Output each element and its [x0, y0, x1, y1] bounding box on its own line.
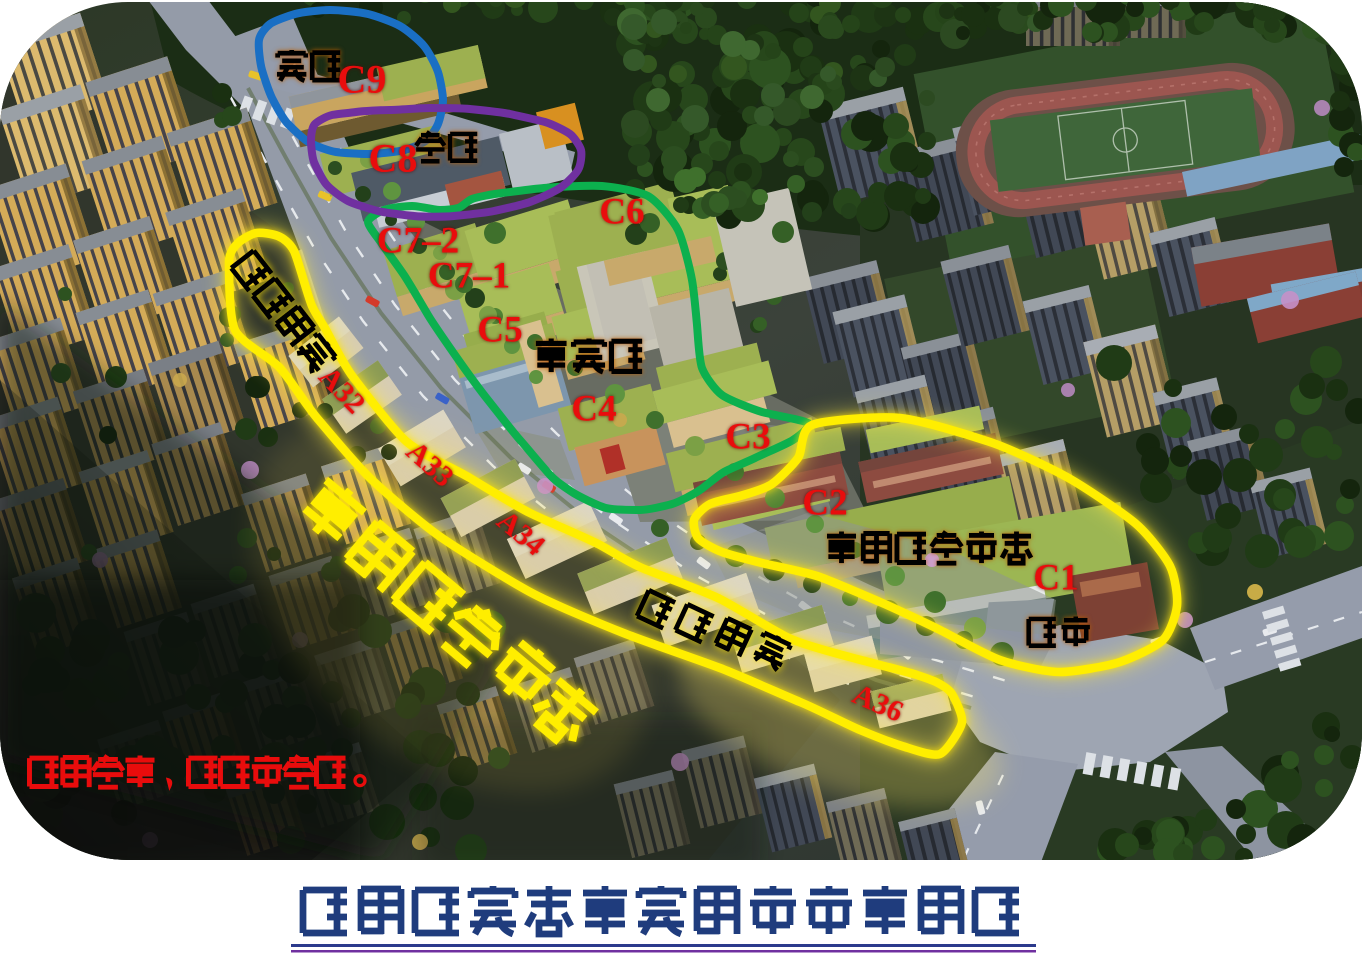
svg-text:C8: C8 [369, 136, 418, 181]
svg-text:C6: C6 [599, 192, 644, 233]
svg-text:C5: C5 [477, 310, 522, 351]
svg-text:C2: C2 [802, 483, 847, 524]
svg-text:C1: C1 [1033, 558, 1078, 599]
svg-text:C7–1: C7–1 [428, 256, 510, 297]
svg-text:C9: C9 [338, 57, 387, 102]
svg-text:C3: C3 [725, 417, 770, 458]
svg-text:C4: C4 [571, 389, 616, 430]
